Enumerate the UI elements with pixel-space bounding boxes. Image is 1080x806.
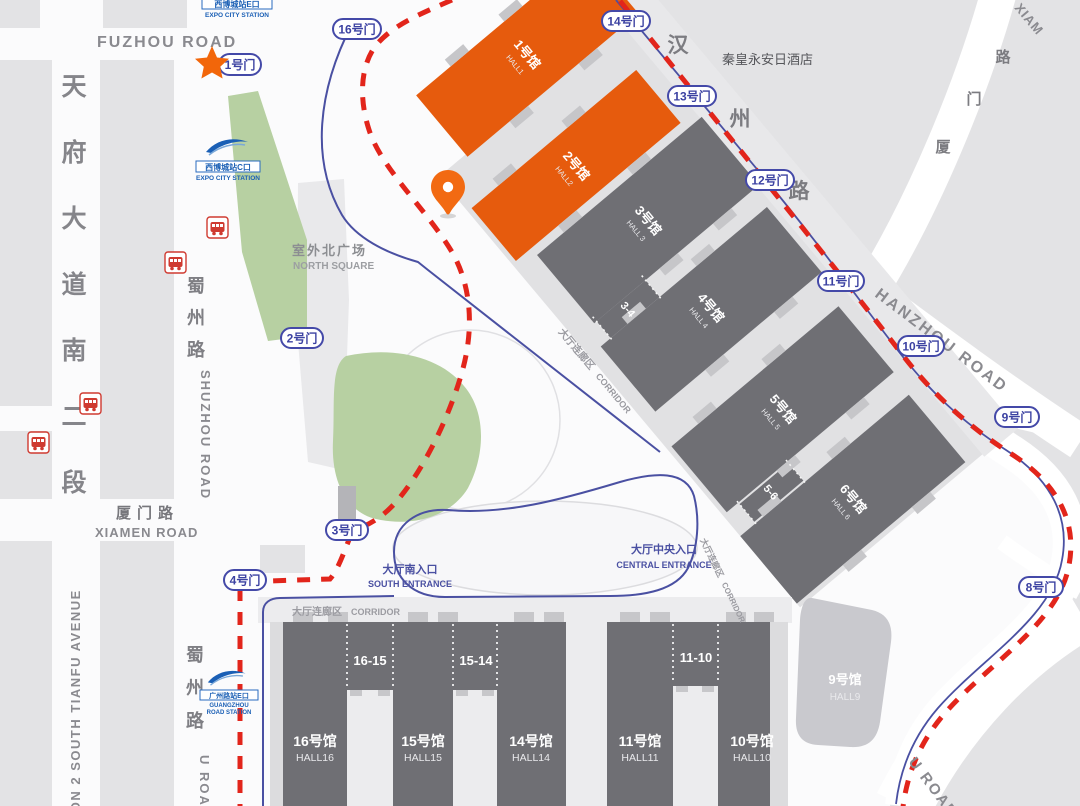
svg-text:蜀: 蜀 — [186, 645, 204, 665]
north-square-label-en: NORTH SQUARE — [293, 261, 374, 272]
connector-15-14-label: 15-14 — [459, 653, 493, 668]
svg-text:府: 府 — [61, 138, 86, 167]
svg-text:8号门: 8号门 — [1026, 580, 1057, 595]
bus-stop-icon[interactable] — [165, 252, 186, 273]
connector-11-10-label: 11-10 — [680, 650, 713, 665]
central-entrance-label-en: CENTRAL ENTRANCE — [616, 560, 711, 570]
corridor-label-bottom-cn: 大厅连廊区 — [292, 605, 342, 618]
metro-guangzhou-label-en1: GUANGZHOU — [209, 703, 248, 709]
gate-14[interactable]: 14号门 — [602, 11, 650, 31]
gate-9[interactable]: 9号门 — [995, 407, 1039, 427]
gate-1[interactable]: 1号门 — [219, 54, 261, 75]
connector-16-15-label: 16-15 — [353, 653, 386, 668]
gate-3[interactable]: 3号门 — [326, 520, 368, 540]
svg-text:13号门: 13号门 — [673, 89, 710, 104]
shuzhou-road-label-north: 蜀 州 路 — [186, 276, 206, 360]
hall-9-label-cn: 9号馆 — [828, 672, 861, 687]
metro-station-expo-top[interactable]: 西博城站E口 EXPO CITY STATION — [202, 0, 272, 19]
svg-text:2号门: 2号门 — [287, 331, 318, 346]
hall-10-label-cn: 10号馆 — [730, 733, 774, 749]
corridor-label-bottom-en: CORRIDOR — [351, 607, 400, 617]
hall-16-label-cn: 16号馆 — [293, 733, 337, 749]
svg-text:路: 路 — [186, 710, 205, 731]
hall-15-label-cn: 15号馆 — [401, 733, 445, 749]
gate-13[interactable]: 13号门 — [668, 86, 716, 106]
svg-text:16号门: 16号门 — [338, 22, 375, 37]
svg-text:门: 门 — [966, 90, 981, 108]
south-entrance-label-cn: 大厅南入口 — [383, 562, 438, 576]
svg-text:路: 路 — [187, 339, 206, 360]
gate-10[interactable]: 10号门 — [898, 336, 944, 356]
gate-12[interactable]: 12号门 — [746, 170, 794, 190]
hall-14-label-en: HALL14 — [512, 752, 550, 764]
fuzhou-road-label: FUZHOU ROAD — [97, 34, 237, 51]
bus-stop-icon[interactable] — [80, 393, 101, 414]
bus-stop-icon[interactable] — [28, 432, 49, 453]
metro-expo-c-label-cn: 西博城站C口 — [205, 162, 251, 172]
hall-16-label-en: HALL16 — [296, 752, 334, 764]
svg-text:州: 州 — [730, 108, 751, 131]
tianfu-avenue-en-label: SECTION 2 SOUTH TIANFU AVENUE — [68, 589, 83, 806]
svg-text:汉: 汉 — [668, 34, 690, 57]
metro-expo-top-label-en: EXPO CITY STATION — [205, 12, 269, 19]
metro-expo-top-label-cn: 西博城站E口 — [214, 0, 259, 9]
gate-4[interactable]: 4号门 — [224, 570, 266, 590]
svg-text:段: 段 — [61, 468, 86, 497]
south-entrance-label-en: SOUTH ENTRANCE — [368, 579, 452, 589]
xiamen-road-label-en: XIAMEN ROAD — [95, 525, 198, 540]
svg-text:天: 天 — [61, 73, 86, 101]
svg-text:4号门: 4号门 — [230, 573, 261, 588]
gate-2[interactable]: 2号门 — [281, 328, 323, 348]
svg-text:南: 南 — [61, 337, 86, 365]
hall-11-label-en: HALL11 — [621, 752, 658, 764]
metro-expo-c-label-en: EXPO CITY STATION — [196, 175, 260, 182]
svg-text:路: 路 — [995, 48, 1011, 66]
svg-text:厦: 厦 — [935, 139, 951, 156]
hall-14-label-cn: 14号馆 — [509, 733, 553, 749]
svg-text:大: 大 — [61, 205, 86, 233]
svg-text:11号门: 11号门 — [823, 274, 860, 289]
hall-11-label-cn: 11号馆 — [619, 733, 662, 749]
svg-text:9号门: 9号门 — [1002, 410, 1033, 425]
park-building — [338, 486, 356, 522]
svg-text:道: 道 — [61, 270, 86, 299]
svg-text:州: 州 — [186, 308, 205, 328]
gate-16[interactable]: 16号门 — [333, 19, 381, 39]
svg-text:12号门: 12号门 — [751, 173, 788, 188]
metro-guangzhou-label-en2: ROAD STATION — [207, 710, 252, 716]
svg-text:蜀: 蜀 — [187, 276, 205, 296]
svg-text:14号门: 14号门 — [607, 14, 644, 29]
gate-11[interactable]: 11号门 — [818, 271, 864, 291]
north-square-label-cn: 室外北广场 — [292, 243, 367, 258]
shuzhou-road-en-south-fragment: U ROAD — [197, 755, 212, 806]
svg-text:3号门: 3号门 — [332, 523, 363, 538]
south-hall-complex: 16-15 15-14 11-10 16号馆 HALL16 15号馆 HALL1… — [270, 612, 788, 806]
metro-guangzhou-label-cn: 广州路站E口 — [209, 691, 249, 700]
bus-stop-icon[interactable] — [207, 217, 228, 238]
hotel-label: 秦皇永安日酒店 — [722, 52, 813, 67]
hall-15-label-en: HALL15 — [404, 752, 442, 764]
expo-map: 1号馆 HALL1 2号馆 HALL2 3号馆 HALL 3 4号馆 HALL … — [0, 0, 1080, 806]
gate-8[interactable]: 8号门 — [1019, 577, 1063, 597]
central-entrance-label-cn: 大厅中央入口 — [631, 542, 697, 556]
svg-text:10号门: 10号门 — [902, 339, 939, 354]
shuzhou-road-label-south: 蜀 州 路 — [185, 645, 205, 731]
hall-9-label-en: HALL9 — [830, 692, 861, 703]
shuzhou-road-en-label: SHUZHOU ROAD — [198, 370, 213, 500]
hall-10-label-en: HALL10 — [733, 752, 771, 764]
svg-text:1号门: 1号门 — [225, 57, 256, 72]
xiamen-road-label-cn: 厦门路 — [116, 504, 179, 522]
